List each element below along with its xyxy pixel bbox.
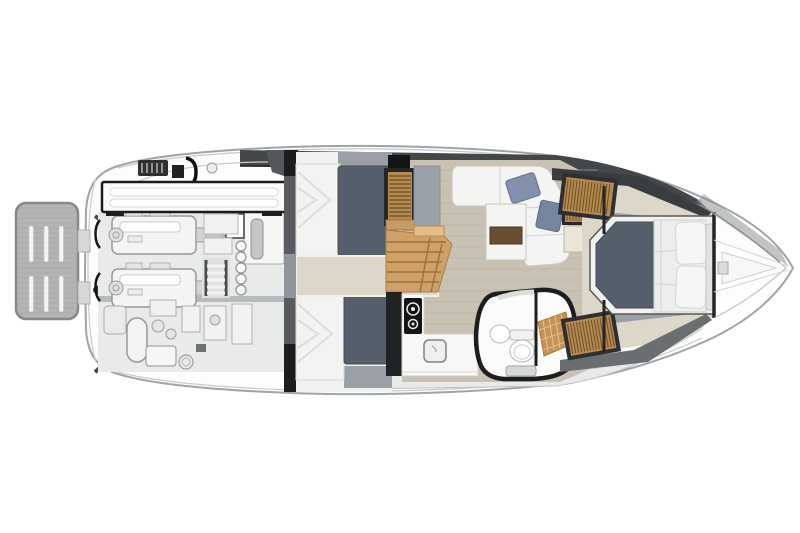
gas-cylinder (251, 219, 263, 259)
stbd-manifold-a (126, 263, 142, 269)
walkway-gray-seat (284, 254, 296, 298)
port-engine-label (128, 236, 142, 242)
burner-large-center (411, 307, 415, 311)
stbd-engine-cover (120, 275, 180, 285)
systems-box-c (232, 304, 252, 344)
burner-small-center (412, 323, 415, 326)
stair-landing (414, 166, 440, 232)
master-wardrobe-top (558, 173, 619, 222)
pump-a (152, 320, 164, 332)
toilet-tank (510, 330, 534, 340)
yacht-floorplan-svg (0, 0, 800, 533)
holding-tank (104, 306, 126, 334)
step-box-b (204, 238, 232, 254)
coffee-table-walnut (490, 227, 522, 244)
master-pillow-top (675, 221, 706, 264)
galley-sink (424, 340, 446, 362)
step-box-a (204, 214, 238, 234)
dark-fitting (196, 344, 206, 352)
head-mat (506, 366, 536, 376)
bench-cushion-a (110, 188, 278, 196)
aft-bulkhead-top (284, 150, 296, 176)
head-basin (490, 325, 510, 343)
seacock (210, 315, 220, 325)
berth-stbd-mattress (344, 292, 392, 364)
pump-b (166, 329, 176, 339)
locker-cap (386, 220, 416, 230)
guest-gray-strip-bottom (344, 366, 392, 388)
systems-box-a (182, 306, 200, 332)
platform-step-upper (78, 230, 90, 252)
deck-hatch-round (179, 355, 193, 369)
stbd-pulley (109, 281, 123, 295)
generator (146, 346, 176, 366)
aft-bulkhead-bottom (284, 344, 296, 392)
bench-cushion-b (110, 199, 278, 207)
stbd-engine-label (128, 289, 142, 295)
port-pulley (109, 228, 123, 242)
storage-cabinet (244, 212, 284, 264)
master-pillow-bottom (675, 265, 706, 308)
deck-fitting (207, 163, 217, 173)
stbd-manifold-b (150, 263, 170, 269)
island-bed (590, 216, 714, 314)
floorplan-image (0, 0, 800, 533)
galley-black-wall (386, 292, 402, 376)
water-heater (127, 318, 147, 362)
engine-room (96, 210, 287, 372)
windlass (718, 262, 728, 274)
berth-port-mattress (338, 166, 392, 256)
cockpit-bench (102, 182, 286, 216)
stair-top-tread (414, 226, 444, 236)
guest-berth-port (296, 164, 392, 258)
port-engine-cover (120, 222, 180, 232)
master-mattress (596, 222, 654, 308)
deck-box (172, 165, 184, 178)
platform-step-lower (78, 282, 90, 304)
battery-box (150, 300, 176, 316)
gauge-panel (236, 241, 246, 295)
swim-platform (16, 203, 90, 319)
